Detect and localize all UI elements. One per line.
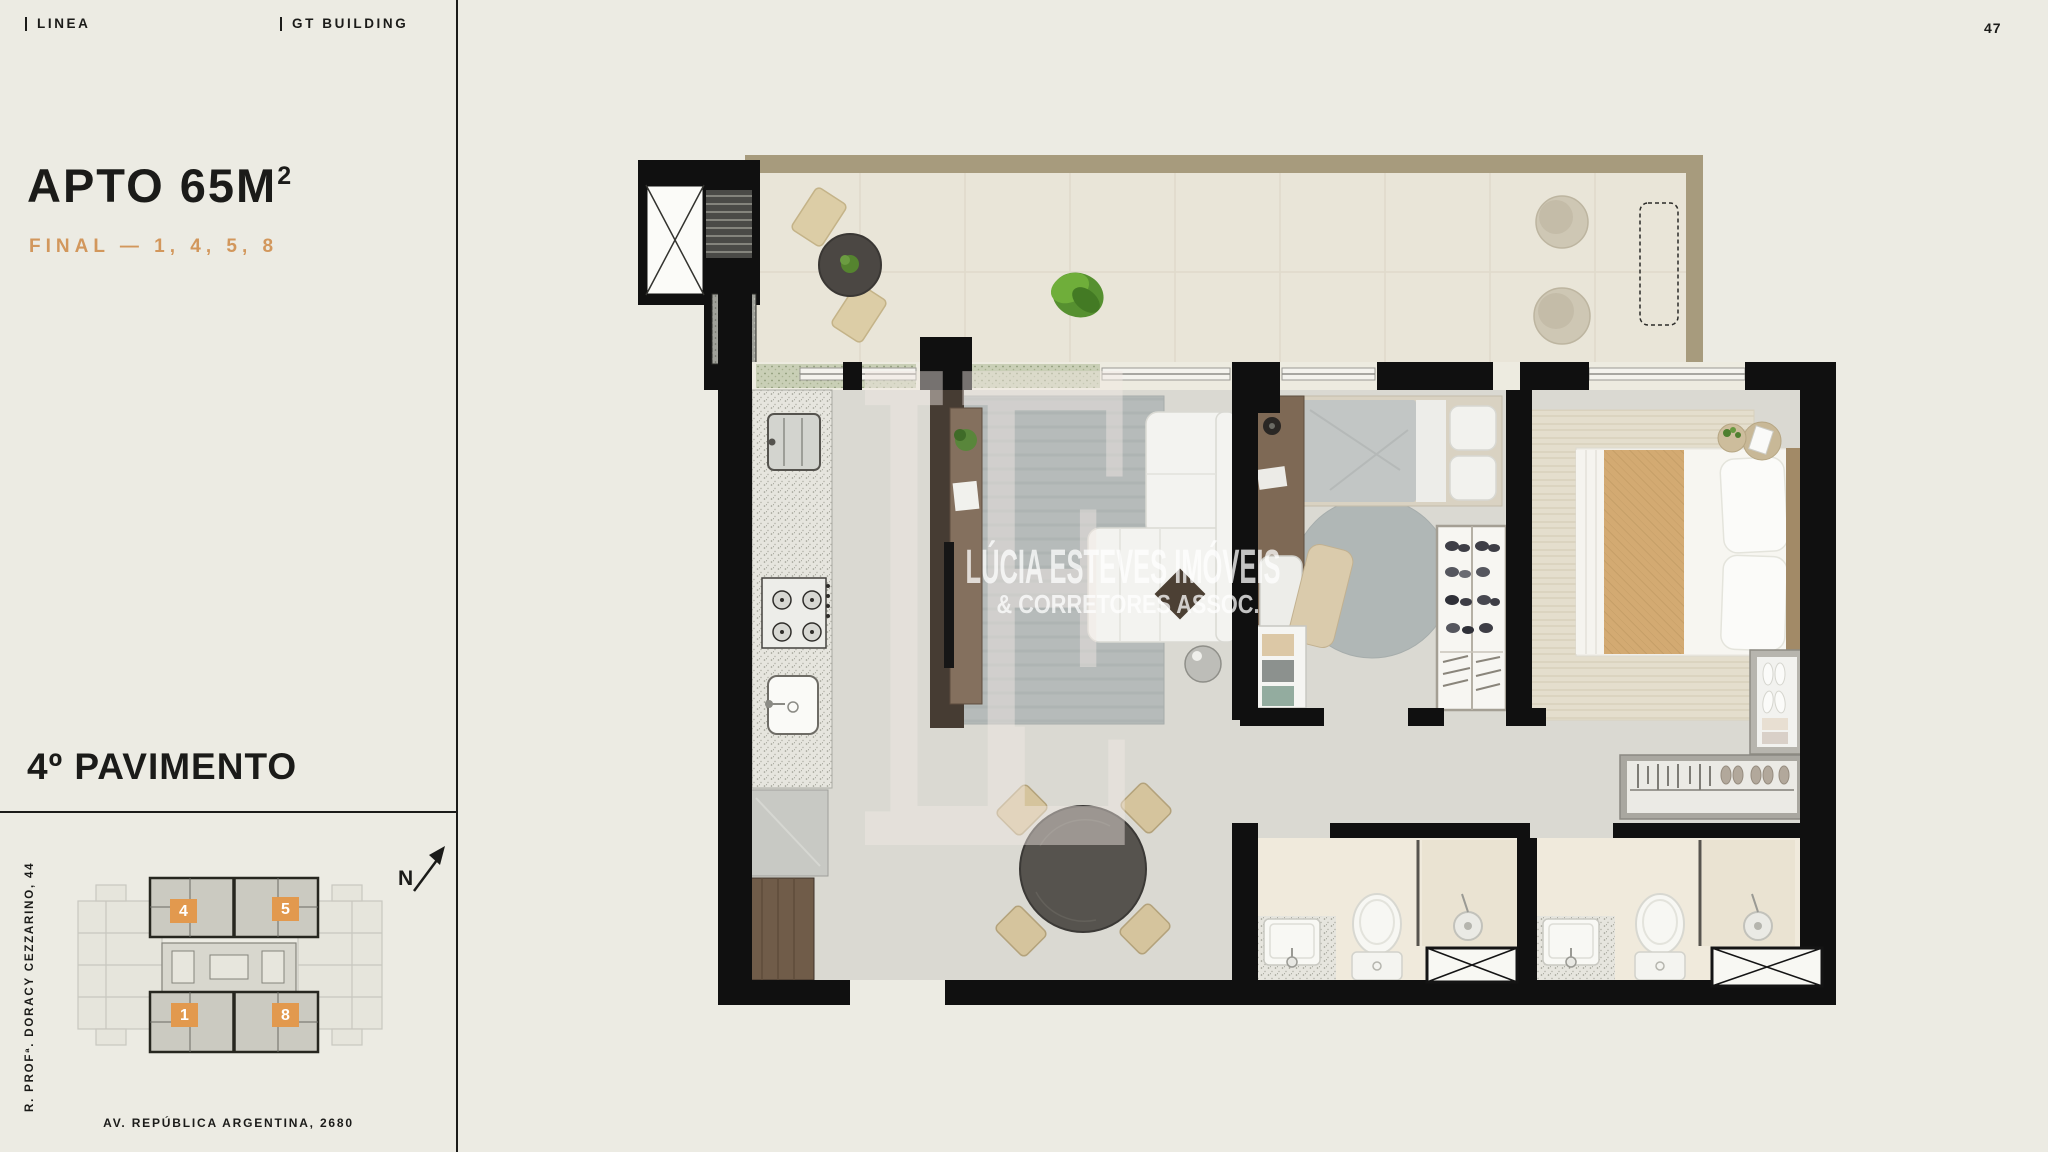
kitchen-sink2-icon — [765, 676, 818, 734]
open-wardrobe — [1437, 526, 1506, 710]
apartment-title: APTO 65M2 — [27, 158, 291, 213]
pillow — [1720, 555, 1787, 651]
balcony-border-right — [1686, 155, 1703, 390]
side-table — [1185, 646, 1221, 682]
stairs-icon — [706, 190, 752, 258]
floorplate-keyplan: 4 5 1 8 — [60, 855, 400, 1065]
page-number: 47 — [1984, 20, 2002, 36]
brand-gt-building: GT BUILDING — [280, 17, 408, 31]
washbasin-icon — [1264, 919, 1320, 967]
unit-8-label: 8 — [281, 1007, 290, 1024]
shoe-shelf — [1750, 650, 1804, 754]
toilet-icon — [1352, 894, 1402, 980]
brand-linea: LINEA — [25, 17, 91, 31]
title-superscript: 2 — [277, 162, 291, 190]
street-side-label: R. PROFª. DORACY CEZZARINO, 44 — [24, 862, 36, 1112]
kitchen-cabinet — [748, 878, 814, 980]
unit-1-label: 1 — [180, 1007, 189, 1024]
stove-icon — [762, 578, 830, 648]
watermark-line1: LÚCIA ESTEVES IMÓVEIS — [966, 539, 1281, 594]
shaft-x-icon — [1712, 948, 1822, 986]
quilt — [1604, 450, 1684, 654]
pillow — [1450, 456, 1496, 500]
floorplan-render: LE LÚCIA ESTEVES IMÓVEIS & CORRETORES AS… — [630, 150, 1840, 1015]
unit-5-label: 5 — [281, 901, 290, 918]
horizontal-divider — [0, 811, 457, 813]
pillow — [1450, 406, 1496, 450]
balcony-border-top — [745, 155, 1703, 173]
vertical-divider — [456, 0, 458, 1152]
apartment-finals: FINAL — 1, 4, 5, 8 — [29, 236, 278, 258]
single-bed — [1288, 396, 1502, 506]
unit-4-label: 4 — [179, 903, 188, 920]
street-bottom-label: AV. REPÚBLICA ARGENTINA, 2680 — [0, 1116, 457, 1130]
north-arrow-icon: N — [398, 843, 452, 901]
notebook — [1257, 466, 1288, 490]
dresser — [1252, 626, 1306, 708]
closet-rail — [1620, 755, 1804, 819]
north-label: N — [398, 867, 413, 890]
washbasin-icon — [1543, 919, 1599, 967]
toilet-icon — [1635, 894, 1685, 980]
kitchen-sink-icon — [768, 414, 820, 470]
double-bed — [1576, 448, 1804, 656]
pillow — [1720, 456, 1789, 553]
shaft-x-icon — [1427, 948, 1517, 982]
floor-title: 4º PAVIMENTO — [27, 746, 297, 788]
watermark-line2: & CORRETORES ASSOC. — [997, 589, 1260, 619]
